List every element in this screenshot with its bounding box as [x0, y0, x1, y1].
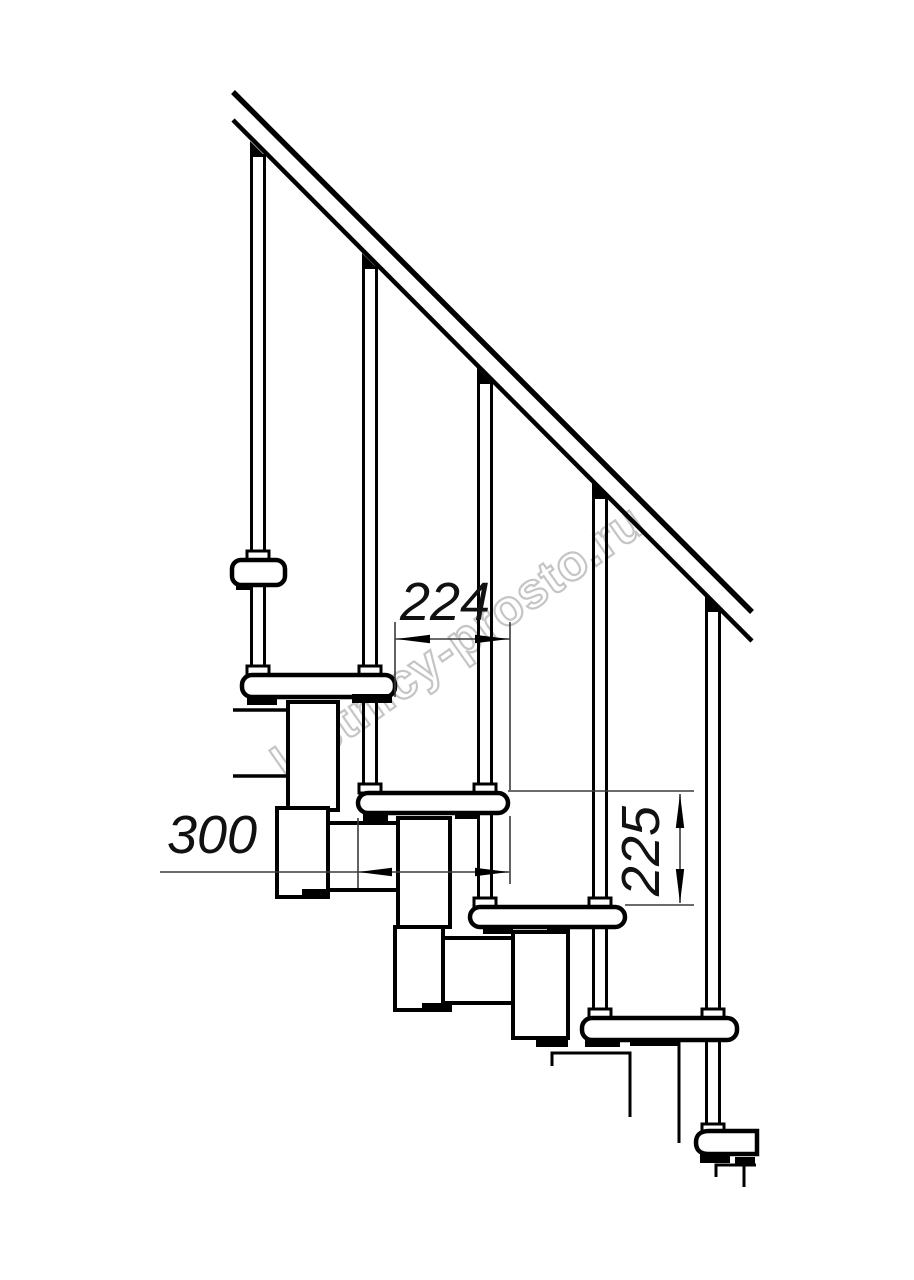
module-d — [443, 938, 517, 1003]
tread-6-rear-tab — [700, 1154, 730, 1163]
tread-4-rear-tab — [483, 926, 513, 934]
tread-4-front-tab — [547, 926, 570, 933]
module-b2 — [277, 808, 328, 897]
module-d1 — [513, 932, 568, 1038]
tread-3-rear-tab — [363, 812, 388, 821]
module-f-outline — [716, 1165, 756, 1177]
tread-6-front-tab — [735, 1157, 755, 1166]
dimension-225-label: 225 — [611, 805, 671, 897]
tread-5-rear-tab — [585, 1039, 620, 1047]
baluster-5 — [702, 596, 724, 1133]
tread-2-rear-tab — [247, 696, 277, 705]
module-c — [328, 823, 405, 890]
arrow-down — [676, 869, 684, 903]
tread-2 — [242, 675, 395, 697]
tread-1 — [232, 560, 285, 585]
tread-5-front-tab — [630, 1039, 680, 1046]
tread-1-tab — [236, 583, 252, 590]
tread-3 — [358, 793, 508, 813]
arrow-up — [676, 794, 684, 828]
staircase-drawing: lestnicy-prosto.ru — [0, 0, 914, 1280]
tread-3-front-tab — [455, 811, 478, 819]
dimension-300-label: 300 — [167, 805, 257, 865]
module-c2 — [395, 927, 443, 1010]
drawing-page: lestnicy-prosto.ru — [0, 0, 914, 1280]
tread-6 — [696, 1131, 757, 1154]
module-d1-foot — [536, 1037, 568, 1047]
dimension-224-label: 224 — [399, 572, 490, 632]
dimension-riser-height: 225 — [508, 791, 694, 905]
module-b1 — [288, 702, 338, 810]
module-b2-foot — [302, 889, 330, 898]
baluster-1 — [247, 141, 269, 675]
support-modules — [233, 702, 756, 1187]
tread-5 — [582, 1018, 737, 1040]
module-e-outline — [552, 1053, 630, 1117]
tread-4 — [470, 907, 625, 927]
tread-2-front-tab — [352, 694, 392, 703]
